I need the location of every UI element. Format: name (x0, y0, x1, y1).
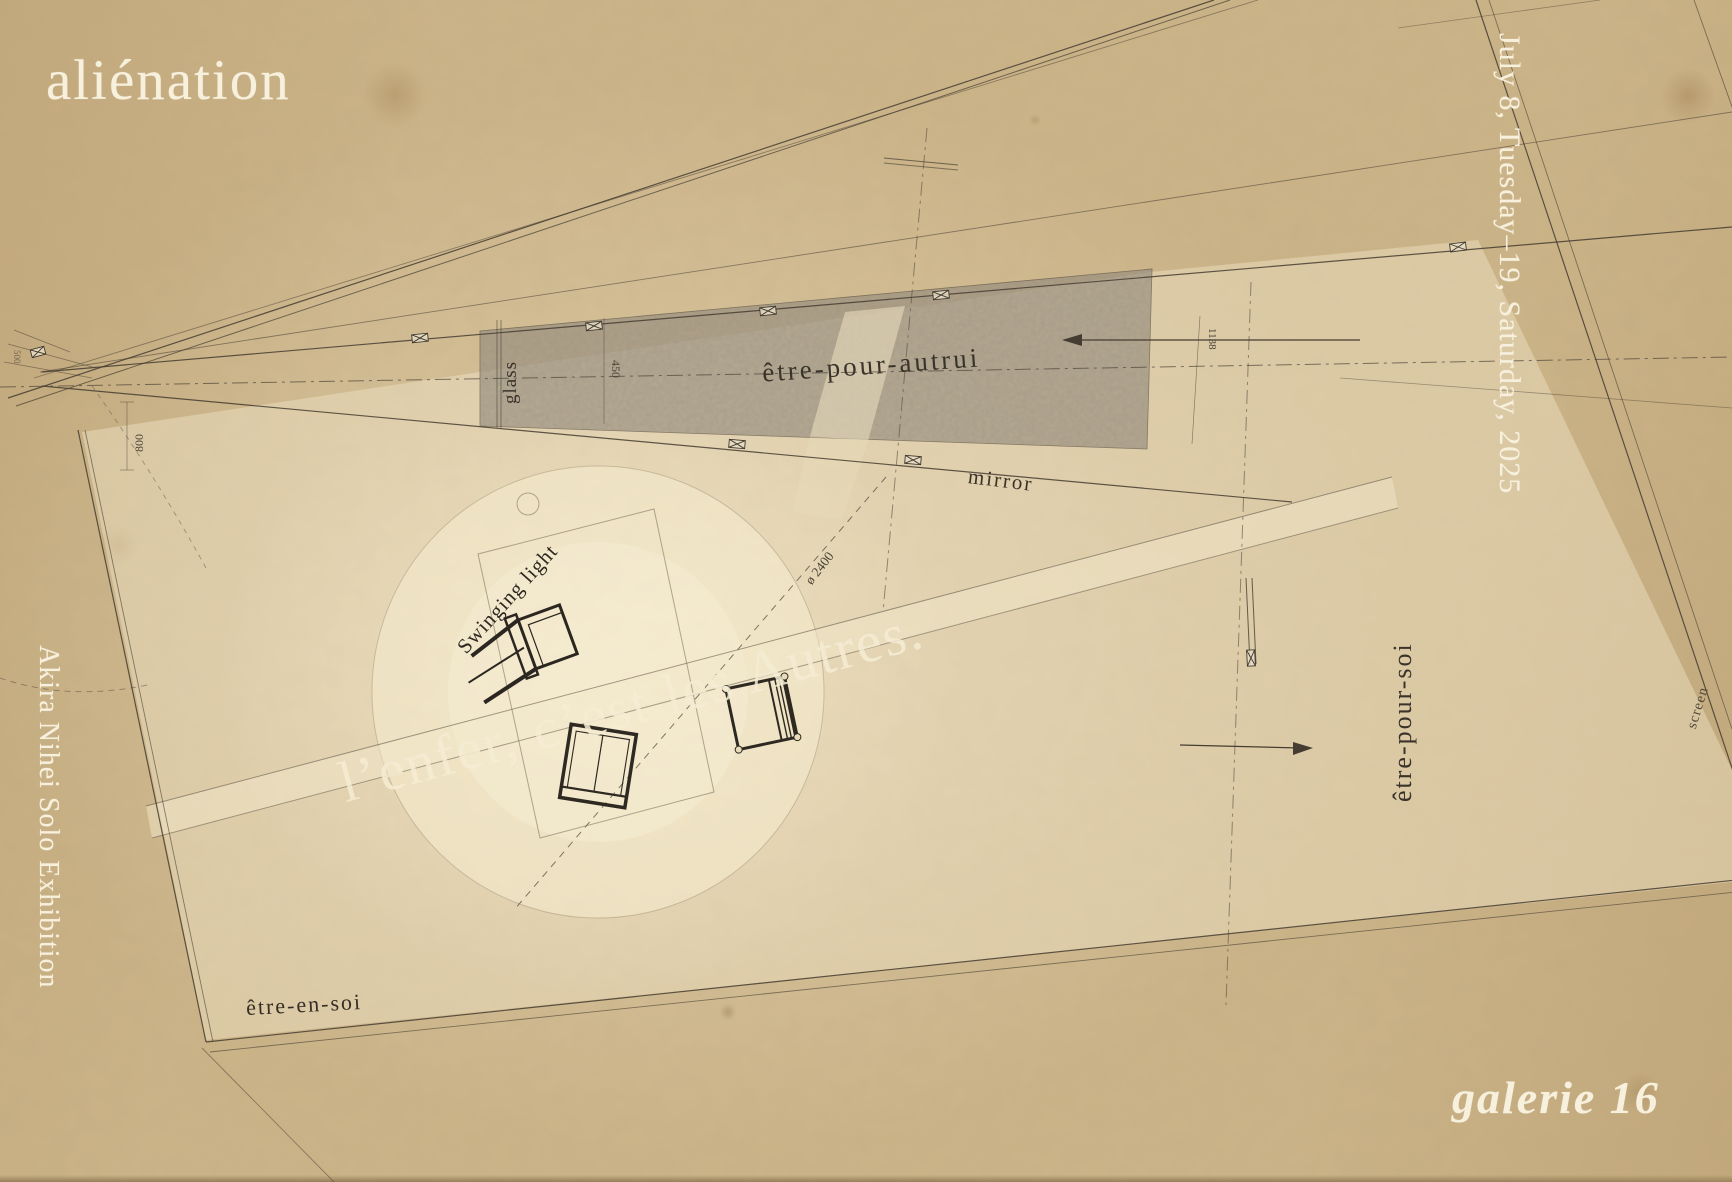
artist-name: Akira Nihei Solo Exhibition (32, 645, 64, 989)
dimension-450: 450 (608, 360, 622, 378)
glass-label: glass (500, 361, 522, 404)
dimension-500: 500 (12, 350, 22, 364)
dimension-800: 800 (133, 434, 147, 452)
exhibition-dates: July 8, Tuesday–19, Saturday, 2025 (1492, 33, 1527, 494)
zone-label-etre-pour-soi: être-pour-soi (1388, 642, 1418, 802)
venue-name: galerie 16 (1452, 1072, 1660, 1125)
exhibition-poster: l’enfer, c’est les Autres. être-pour-aut… (0, 0, 1732, 1182)
poster-title: aliénation (46, 48, 291, 114)
dimension-1138: 1138 (1205, 328, 1218, 350)
